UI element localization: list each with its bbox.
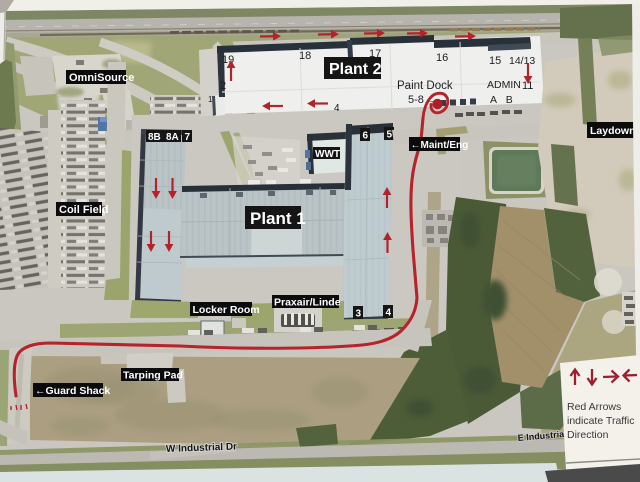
svg-text:OmniSource: OmniSource xyxy=(69,72,134,84)
svg-text:←Maint/Eng: ←Maint/Eng xyxy=(411,140,469,151)
svg-text:Red Arrows: Red Arrows xyxy=(567,401,621,413)
svg-text:Coil Field: Coil Field xyxy=(59,204,109,216)
svg-text:Laydown Yar: Laydown Yar xyxy=(590,125,640,137)
svg-text:Direction: Direction xyxy=(567,429,609,441)
svg-text:Locker Room: Locker Room xyxy=(193,304,260,316)
svg-text:Praxair/Linde: Praxair/Linde xyxy=(274,297,341,309)
svg-text:4: 4 xyxy=(334,103,340,114)
svg-text:←Guard Shack: ←Guard Shack xyxy=(35,385,110,397)
svg-text:indicate Traffic: indicate Traffic xyxy=(567,415,635,427)
svg-text:Tarping Pad: Tarping Pad xyxy=(123,370,183,382)
